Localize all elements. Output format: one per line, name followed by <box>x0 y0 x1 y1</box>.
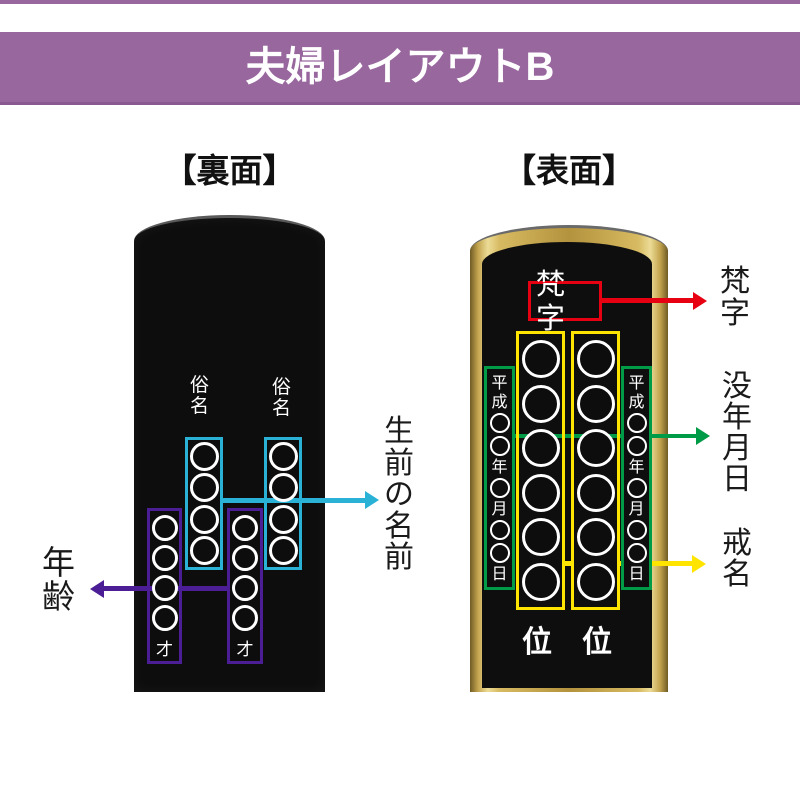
character-circle <box>577 563 615 601</box>
character-circle <box>152 575 178 601</box>
date-circle <box>490 478 510 498</box>
date-char: 日 <box>491 565 507 582</box>
character-circle <box>269 505 298 534</box>
top-accent-strip <box>0 0 800 4</box>
date-char: 平 <box>491 374 507 391</box>
character-circle <box>522 385 560 423</box>
age-annotation: 年齢 <box>42 546 78 614</box>
date-char: 成 <box>628 393 644 410</box>
bonji-arrow-icon <box>693 292 707 310</box>
character-circle <box>522 563 560 601</box>
death-date-arrow-icon <box>696 427 710 445</box>
date-circle <box>490 413 510 433</box>
age-arrow-icon <box>90 580 104 598</box>
character-circle <box>152 515 178 541</box>
bonji-inscription: 梵字 <box>536 267 599 335</box>
character-circle <box>269 473 298 502</box>
character-circle <box>152 545 178 571</box>
header-bar: 夫婦レイアウトB <box>0 32 800 105</box>
character-circle <box>522 518 560 556</box>
age-suffix: 才 <box>156 635 173 660</box>
character-circle <box>190 536 219 565</box>
back-side-title: 【裏面】 <box>134 144 325 192</box>
kaimyo-box-right <box>571 331 620 610</box>
age-box-right: 才 <box>227 508 263 664</box>
rank-char-right: 位 <box>582 617 612 661</box>
kaimyo-box-left <box>516 331 565 610</box>
date-char: 月 <box>491 500 507 517</box>
character-circle <box>522 474 560 512</box>
rank-characters: 位 位 <box>482 617 652 661</box>
character-circle <box>269 442 298 471</box>
character-circle <box>232 545 258 571</box>
date-circle <box>627 520 647 540</box>
character-circle <box>577 518 615 556</box>
common-name-label-left: 俗名 <box>190 375 210 417</box>
character-circle <box>269 536 298 565</box>
page-title: 夫婦レイアウトB <box>0 32 800 102</box>
age-suffix: 才 <box>237 635 254 660</box>
age-box-left: 才 <box>147 508 182 664</box>
death-date-box-right: 平成年月日 <box>621 366 652 590</box>
date-char: 年 <box>491 458 507 475</box>
character-circle <box>522 429 560 467</box>
lifetime-name-box-left <box>185 437 223 570</box>
date-char: 成 <box>491 393 507 410</box>
character-circle <box>190 505 219 534</box>
date-char: 年 <box>628 458 644 475</box>
lifetime-name-annotation: 生前の名前 <box>384 416 416 574</box>
rank-char-left: 位 <box>522 617 552 661</box>
date-char: 日 <box>628 565 644 582</box>
date-circle <box>490 436 510 456</box>
death-date-box-left: 平成年月日 <box>484 366 515 590</box>
memorial-tablet-layout-diagram: 夫婦レイアウトB 【裏面】 【表面】 俗名 俗名 才 才 梵字 <box>0 0 800 800</box>
date-circle <box>627 543 647 563</box>
character-circle <box>232 515 258 541</box>
character-circle <box>577 340 615 378</box>
character-circle <box>522 340 560 378</box>
character-circle <box>577 385 615 423</box>
kaimyo-arrow-icon <box>692 555 706 573</box>
front-tablet: 梵字 平成年月日 平成年月日 位 位 <box>470 225 668 692</box>
bonji-box: 梵字 <box>528 281 602 321</box>
date-circle <box>490 520 510 540</box>
back-tablet: 俗名 俗名 才 才 <box>134 215 325 692</box>
character-circle <box>190 442 219 471</box>
character-circle <box>152 605 178 631</box>
death-date-annotation: 没年月日 <box>722 371 754 495</box>
date-circle <box>627 436 647 456</box>
character-circle <box>577 429 615 467</box>
date-circle <box>490 543 510 563</box>
date-circle <box>627 478 647 498</box>
bonji-connector-line <box>602 298 694 303</box>
bonji-annotation: 梵字 <box>720 266 752 330</box>
date-char: 月 <box>628 500 644 517</box>
date-circle <box>627 413 647 433</box>
character-circle <box>190 473 219 502</box>
front-side-title: 【表面】 <box>470 144 668 192</box>
common-name-label-right: 俗名 <box>272 377 292 419</box>
lifetime-name-box-right <box>264 437 302 570</box>
character-circle <box>232 605 258 631</box>
character-circle <box>577 474 615 512</box>
date-char: 平 <box>628 374 644 391</box>
lifetime-name-arrow-icon <box>365 491 379 509</box>
character-circle <box>232 575 258 601</box>
kaimyo-annotation: 戒名 <box>722 528 754 590</box>
